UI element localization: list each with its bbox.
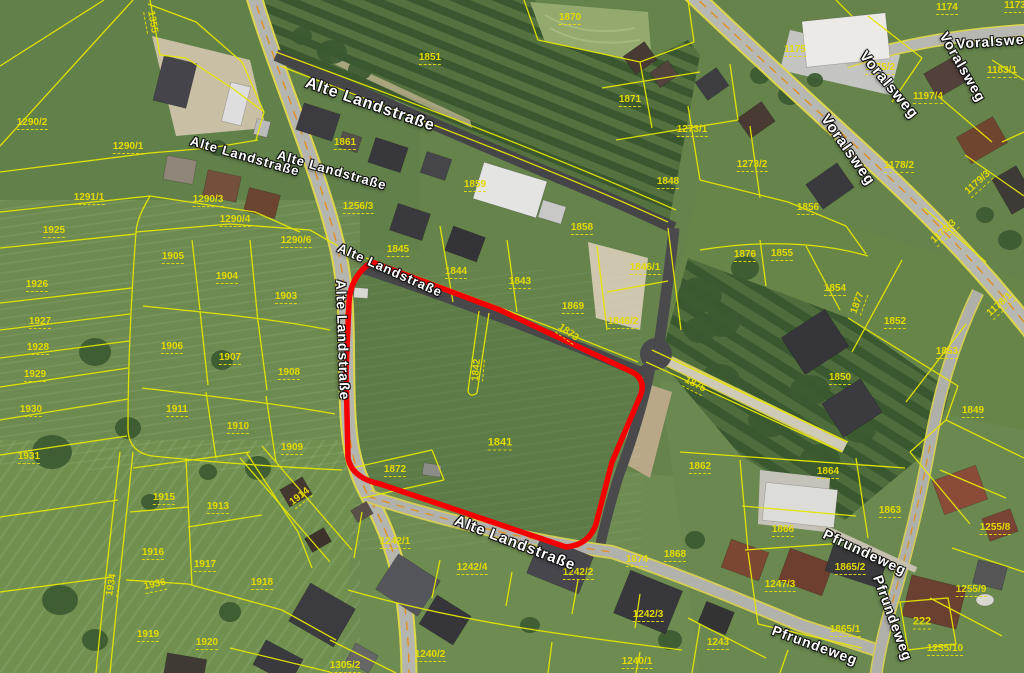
aerial-imagery-layer	[0, 0, 1024, 673]
cadastral-aerial-map[interactable]: 13551290/21290/11291/11290/31290/41290/6…	[0, 0, 1024, 673]
